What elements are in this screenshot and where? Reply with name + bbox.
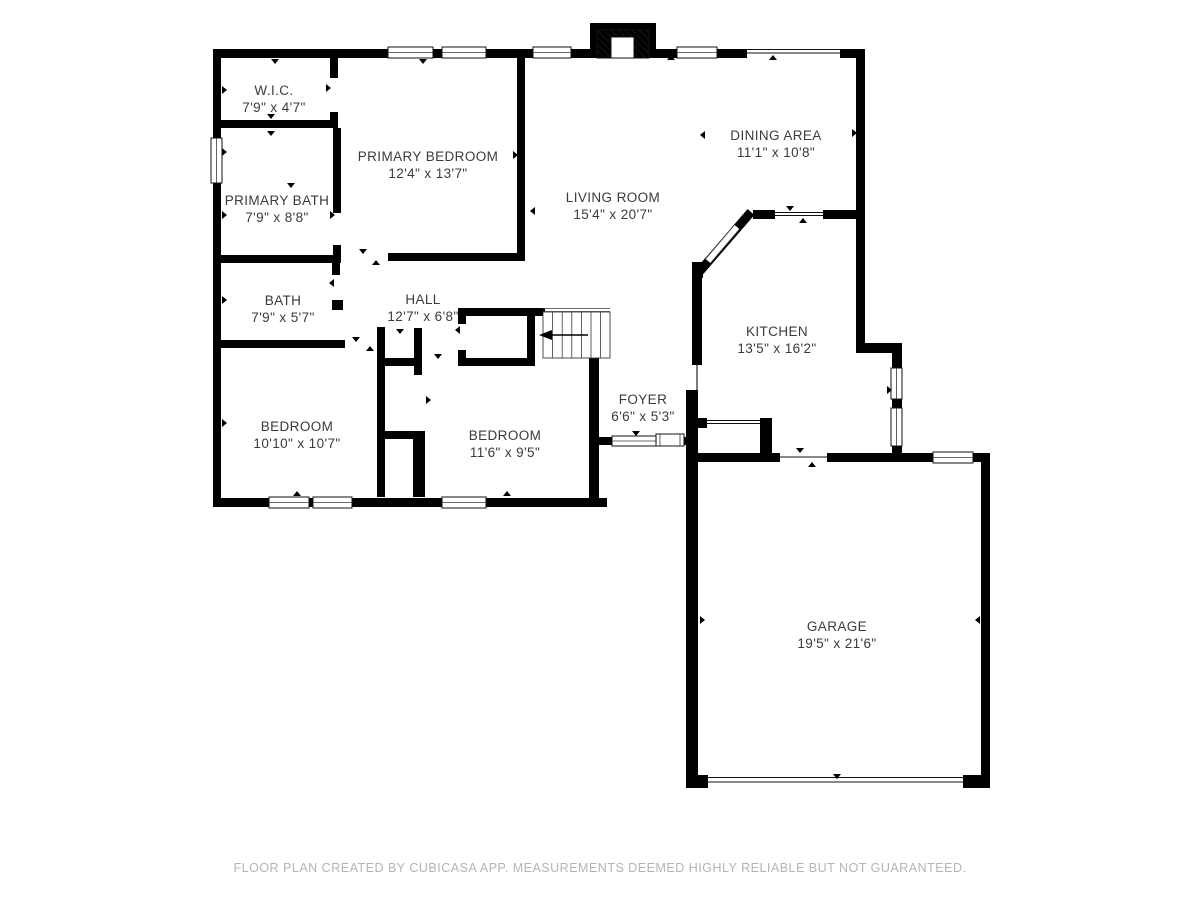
window-icon bbox=[269, 497, 309, 508]
room-name: LIVING ROOM bbox=[566, 189, 660, 206]
room-dimensions: 11'6" x 9'5" bbox=[469, 444, 542, 461]
room-label-kitchen: KITCHEN 13'5" x 16'2" bbox=[737, 323, 816, 357]
window-icon bbox=[313, 497, 352, 508]
room-dimensions: 7'9" x 8'8" bbox=[225, 209, 330, 226]
room-dimensions: 19'5" x 21'6" bbox=[797, 635, 876, 652]
sliding-door-icon bbox=[706, 225, 740, 263]
room-name: BEDROOM bbox=[253, 418, 340, 435]
window-icon bbox=[442, 497, 486, 508]
room-name: PRIMARY BEDROOM bbox=[358, 148, 499, 165]
room-dimensions: 7'9" x 4'7" bbox=[242, 99, 305, 116]
floor-plan-drawing bbox=[0, 0, 1200, 900]
floor-plan-page: W.I.C. 7'9" x 4'7" PRIMARY BEDROOM 12'4"… bbox=[0, 0, 1200, 900]
room-dimensions: 15'4" x 20'7" bbox=[566, 206, 660, 223]
window-icon bbox=[677, 47, 717, 58]
stairs-icon bbox=[539, 309, 610, 359]
room-label-dining-area: DINING AREA 11'1" x 10'8" bbox=[730, 127, 821, 161]
room-name: BEDROOM bbox=[469, 427, 542, 444]
window-icon bbox=[933, 452, 973, 463]
window-icon bbox=[211, 138, 222, 183]
room-label-foyer: FOYER 6'6" x 5'3" bbox=[611, 391, 674, 425]
room-dimensions: 6'6" x 5'3" bbox=[611, 408, 674, 425]
room-name: GARAGE bbox=[797, 618, 876, 635]
room-name: BATH bbox=[251, 292, 314, 309]
window-icon bbox=[388, 47, 433, 58]
room-dimensions: 13'5" x 16'2" bbox=[737, 340, 816, 357]
room-label-bedroom-right: BEDROOM 11'6" x 9'5" bbox=[469, 427, 542, 461]
room-name: DINING AREA bbox=[730, 127, 821, 144]
room-dimensions: 10'10" x 10'7" bbox=[253, 435, 340, 452]
window-icon bbox=[612, 436, 656, 446]
room-label-primary-bedroom: PRIMARY BEDROOM 12'4" x 13'7" bbox=[358, 148, 499, 182]
room-name: W.I.C. bbox=[242, 82, 305, 99]
fireplace-icon bbox=[590, 23, 656, 58]
window-icon bbox=[891, 368, 902, 399]
room-label-hall: HALL 12'7" x 6'8" bbox=[387, 291, 458, 325]
room-label-bath: BATH 7'9" x 5'7" bbox=[251, 292, 314, 326]
room-name: KITCHEN bbox=[737, 323, 816, 340]
room-label-living-room: LIVING ROOM 15'4" x 20'7" bbox=[566, 189, 660, 223]
entry-door-icon bbox=[656, 434, 684, 446]
room-name: PRIMARY BATH bbox=[225, 192, 330, 209]
room-label-wic: W.I.C. 7'9" x 4'7" bbox=[242, 82, 305, 116]
room-label-garage: GARAGE 19'5" x 21'6" bbox=[797, 618, 876, 652]
room-label-bedroom-left: BEDROOM 10'10" x 10'7" bbox=[253, 418, 340, 452]
window-icon bbox=[442, 47, 486, 58]
room-dimensions: 11'1" x 10'8" bbox=[730, 144, 821, 161]
room-label-primary-bath: PRIMARY BATH 7'9" x 8'8" bbox=[225, 192, 330, 226]
room-dimensions: 7'9" x 5'7" bbox=[251, 309, 314, 326]
room-name: HALL bbox=[387, 291, 458, 308]
room-dimensions: 12'7" x 6'8" bbox=[387, 308, 458, 325]
room-name: FOYER bbox=[611, 391, 674, 408]
room-dimensions: 12'4" x 13'7" bbox=[358, 165, 499, 182]
footer-credit-text: FLOOR PLAN CREATED BY CUBICASA APP. MEAS… bbox=[234, 861, 967, 875]
window-icon bbox=[891, 408, 902, 446]
window-icon bbox=[533, 47, 571, 58]
